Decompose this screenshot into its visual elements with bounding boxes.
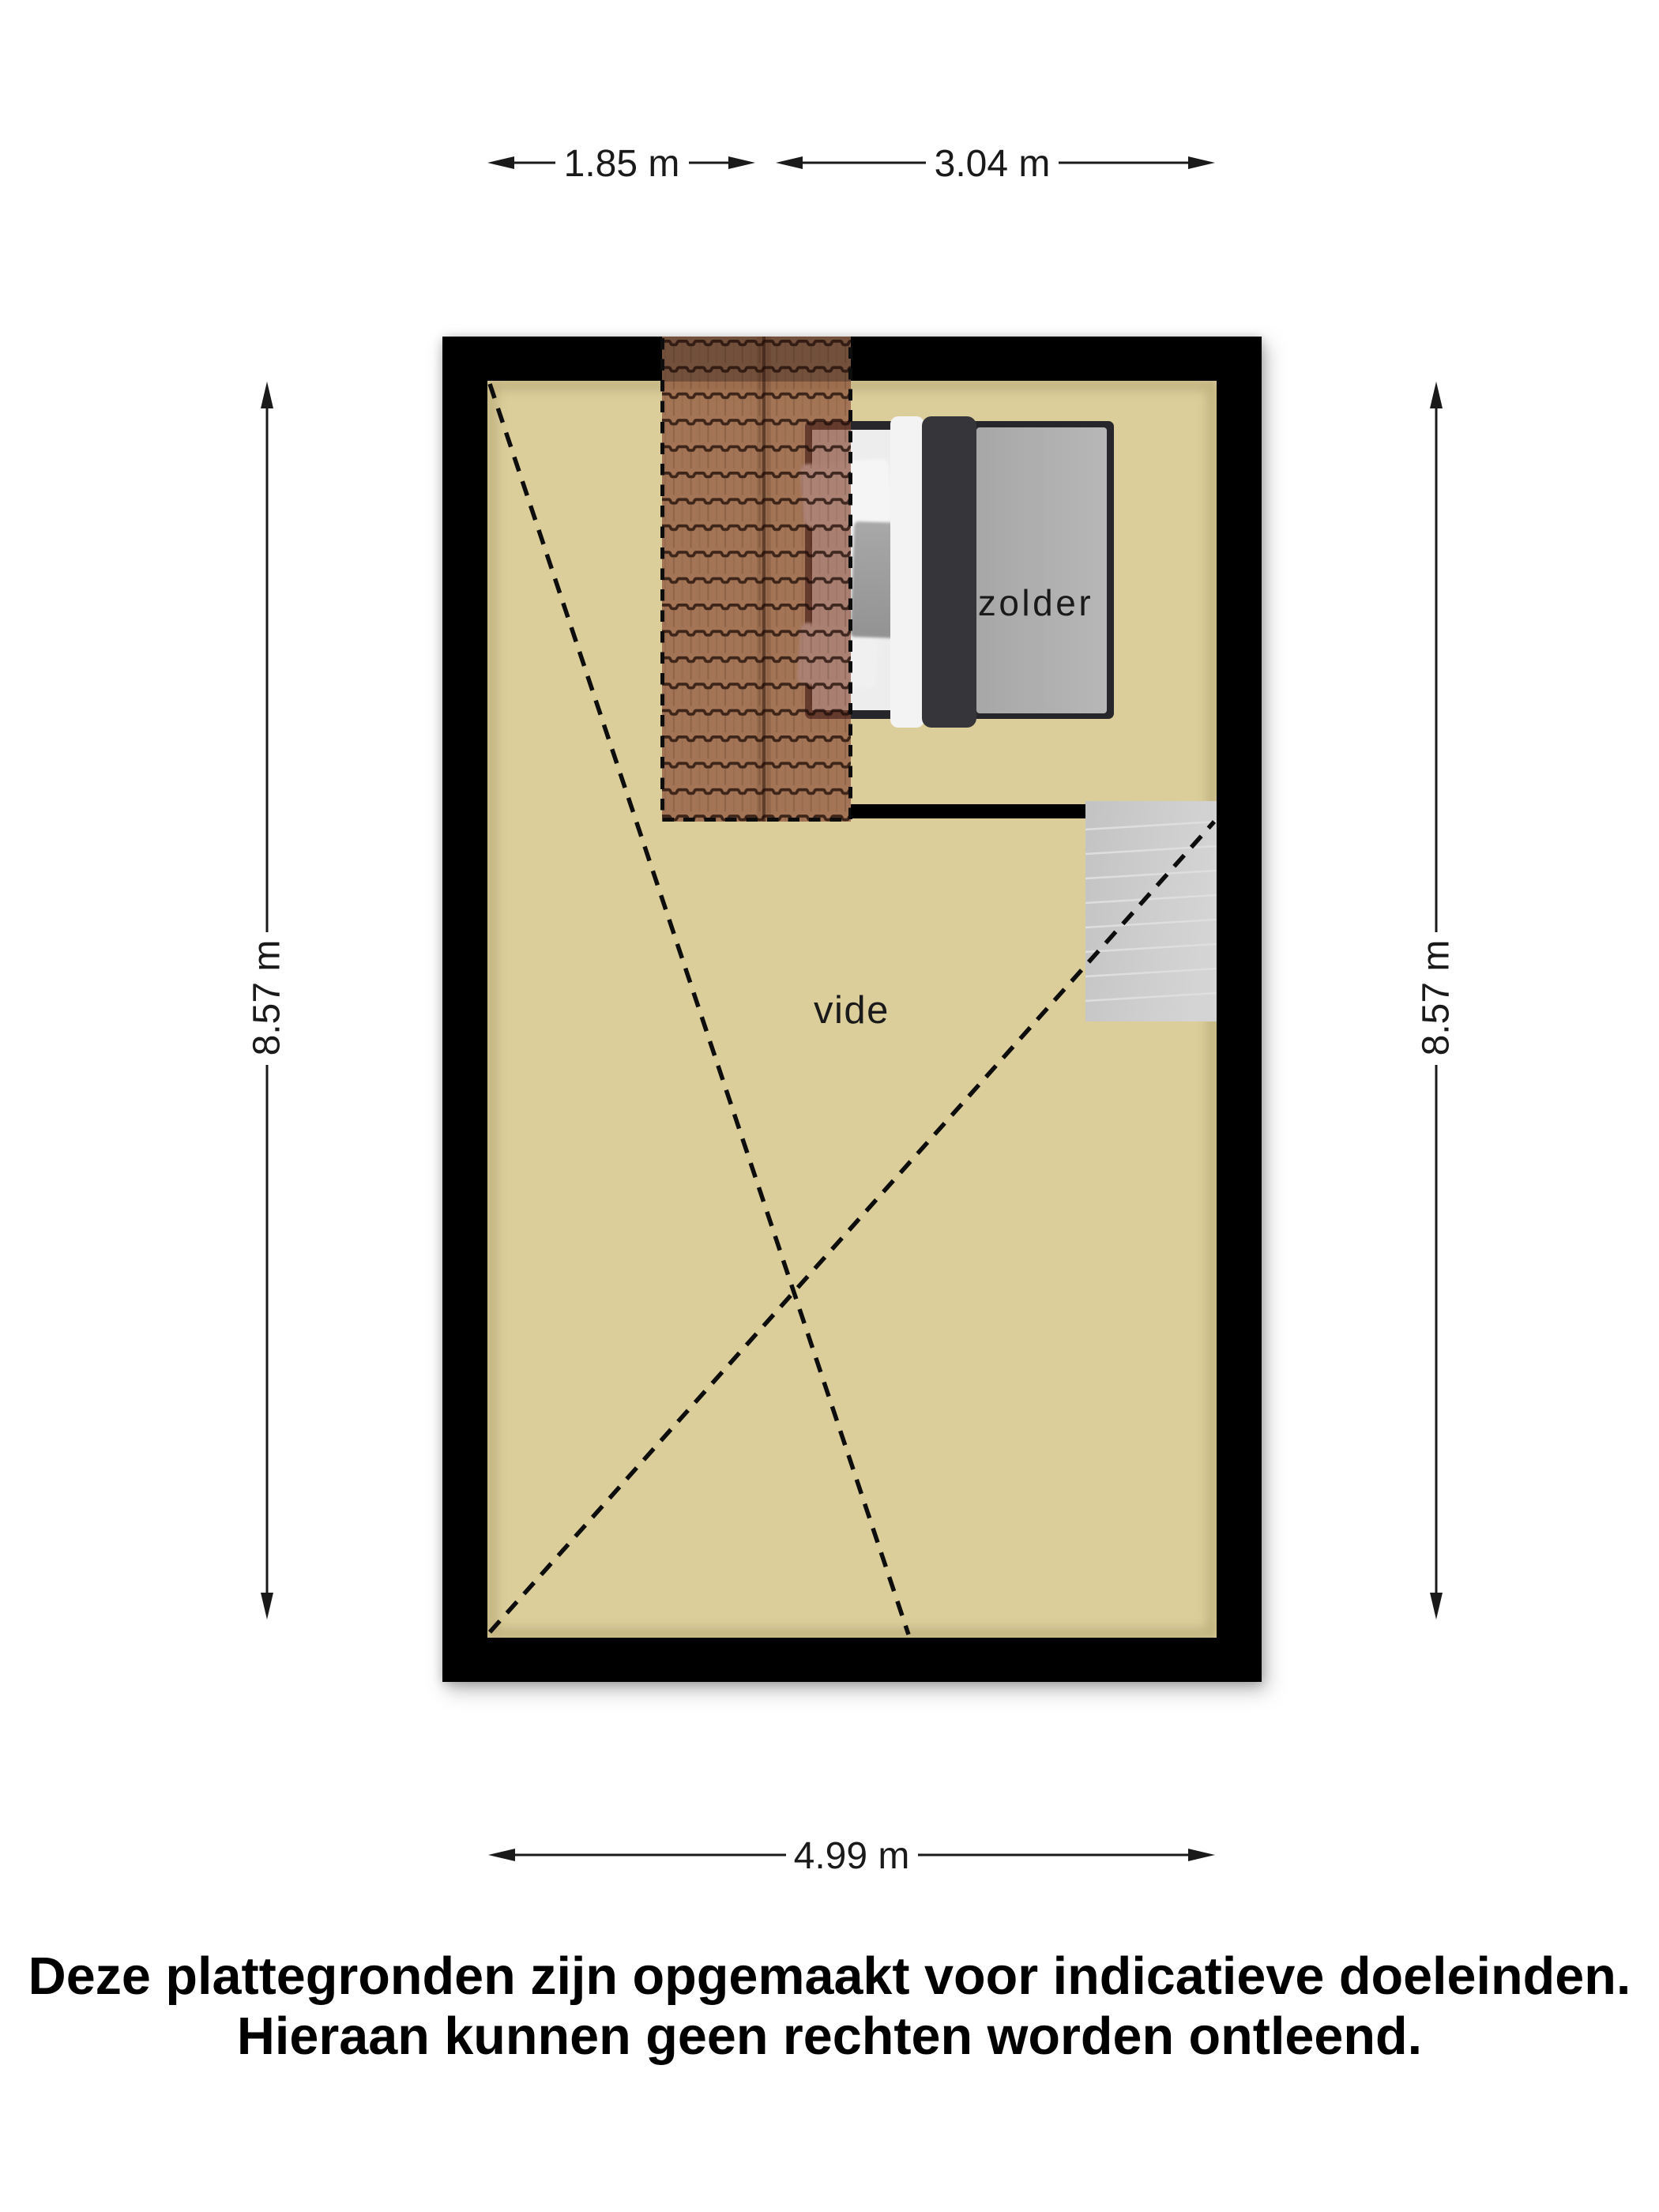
svg-text:4.99 m: 4.99 m xyxy=(794,1835,910,1877)
svg-text:vide: vide xyxy=(814,989,890,1032)
svg-text:zolder: zolder xyxy=(978,582,1093,623)
svg-text:8.57 m: 8.57 m xyxy=(1416,940,1458,1056)
svg-text:8.57 m: 8.57 m xyxy=(246,940,288,1056)
svg-text:Deze plattegronden zijn opgema: Deze plattegronden zijn opgemaakt voor i… xyxy=(28,1947,1631,2006)
svg-text:3.04 m: 3.04 m xyxy=(935,143,1051,185)
svg-text:1.85 m: 1.85 m xyxy=(564,143,680,185)
svg-text:Hieraan kunnen geen rechten wo: Hieraan kunnen geen rechten worden ontle… xyxy=(237,2007,1422,2066)
